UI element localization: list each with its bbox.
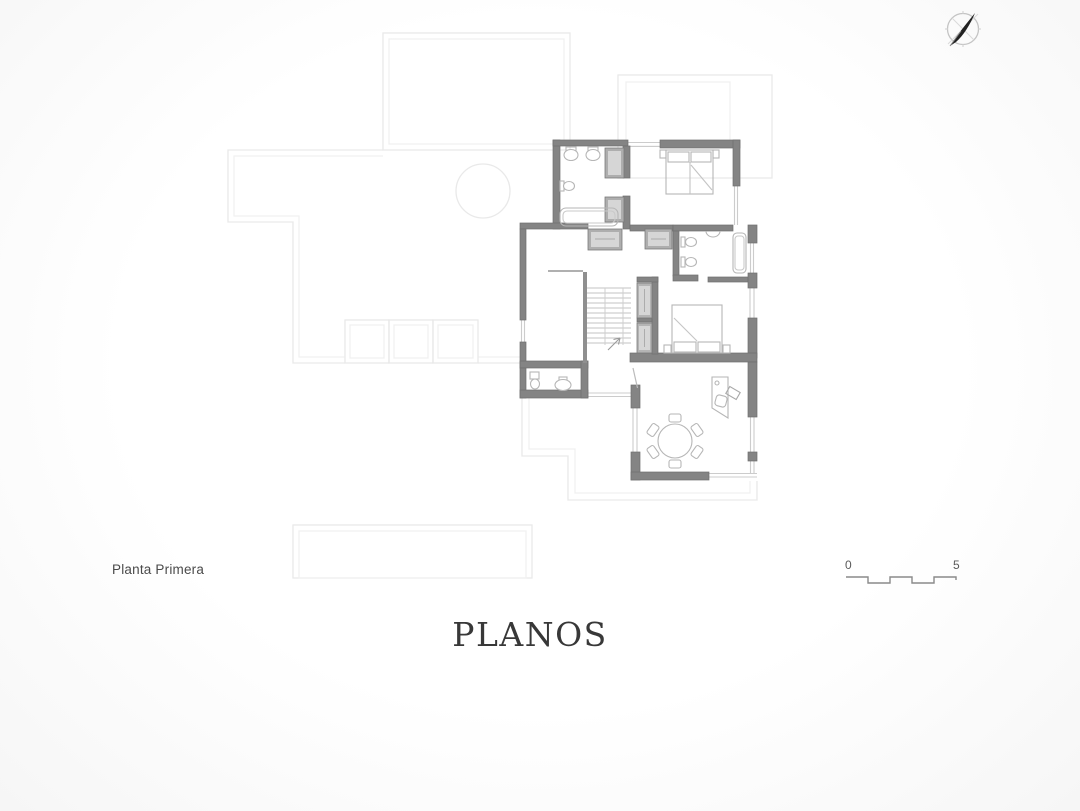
pillow — [668, 152, 689, 162]
toilet — [531, 379, 540, 389]
ghost-skylights — [345, 320, 478, 363]
sheet-title: PLANOS — [404, 615, 656, 654]
bed — [672, 305, 722, 353]
stairs-arrow — [608, 338, 620, 350]
dining-chairs — [646, 414, 703, 468]
studio — [646, 377, 740, 468]
closet — [605, 148, 624, 178]
north-arrow-icon — [945, 11, 981, 47]
floor-plan-drawing — [0, 0, 1080, 811]
desk-chair — [714, 394, 727, 407]
toilet — [686, 238, 697, 247]
closets — [588, 148, 672, 353]
bathroom-mid-right — [681, 231, 746, 273]
sink — [586, 150, 600, 161]
closet — [637, 323, 652, 353]
scale-start-label: 0 — [845, 558, 852, 572]
pillow — [674, 342, 696, 352]
first-floor-plan — [520, 140, 757, 480]
nightstand — [723, 345, 730, 353]
desk — [712, 377, 728, 418]
sink — [564, 150, 578, 161]
pillow — [698, 342, 720, 352]
toilet — [564, 182, 575, 191]
desk-lamp — [715, 381, 719, 385]
closet — [588, 229, 622, 250]
scale-end-label: 5 — [953, 558, 960, 572]
toilet — [681, 237, 685, 247]
bedroom-top-right — [660, 150, 719, 194]
nightstand — [664, 345, 671, 353]
floor-plan-sheet: Planta Primera PLANOS 0 5 — [0, 0, 1080, 811]
toilet — [686, 258, 697, 267]
nightstand — [660, 150, 666, 158]
sink — [555, 380, 571, 391]
toilet — [530, 372, 539, 379]
partitions — [548, 271, 638, 388]
bathtub — [735, 236, 744, 270]
closet — [645, 229, 672, 249]
scale-bar — [846, 577, 956, 583]
closet — [637, 283, 652, 318]
stairs — [587, 288, 631, 350]
wc-bottom-left — [530, 372, 571, 391]
ghost-circle — [456, 164, 510, 218]
nightstand — [713, 150, 719, 158]
dining-table — [658, 424, 692, 458]
floor-label: Planta Primera — [112, 562, 204, 577]
sink — [706, 231, 720, 237]
toilet — [681, 257, 685, 267]
pillow — [691, 152, 711, 162]
bedroom-mid-right — [664, 305, 730, 353]
